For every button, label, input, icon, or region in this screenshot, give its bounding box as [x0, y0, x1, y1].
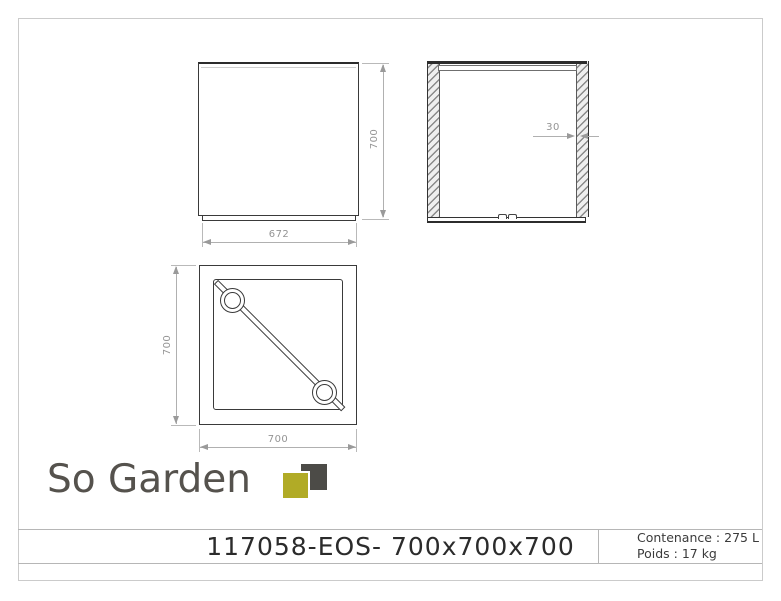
front-dim-width-arrow-right [348, 239, 356, 245]
front-dim-width-extension-right [356, 223, 357, 247]
top-view-drain-hole-1-inner [224, 292, 241, 309]
capacity-text: Contenance : 275 L [637, 530, 762, 546]
front-view-top-seam [201, 67, 356, 68]
section-drain-notch-right [508, 214, 517, 219]
front-dim-height-arrow-bottom [380, 210, 386, 218]
product-info-cell: Contenance : 275 L Poids : 17 kg [637, 530, 762, 562]
top-dim-height-label: 700 [158, 330, 178, 360]
section-dim-wall-tail [588, 136, 599, 137]
top-view-drain-hole-2-inner [316, 384, 333, 401]
section-left-wall-hatch [427, 61, 440, 217]
front-dim-width-arrow-left [203, 239, 211, 245]
top-dim-height-arrow-bottom [173, 416, 179, 424]
section-dim-wall-arrow-right [580, 133, 588, 139]
front-dim-height-label: 700 [365, 124, 385, 154]
section-dim-wall-arrow-left [567, 133, 575, 139]
logo-olive-square-icon [283, 473, 308, 498]
top-dim-width-arrow-right [348, 444, 356, 450]
section-inner-rim [438, 65, 577, 71]
top-dim-width-line [200, 447, 356, 448]
top-dim-height-extension-bottom [171, 425, 196, 426]
front-view-base-lip [202, 215, 356, 221]
section-dim-wall-leader [533, 136, 571, 137]
section-top-edge [427, 61, 587, 64]
section-dim-wall-label: 30 [540, 122, 566, 133]
top-dim-width-extension-right [356, 429, 357, 452]
front-dim-height-extension-bottom [362, 219, 389, 220]
top-dim-height-arrow-top [173, 266, 179, 274]
top-dim-width-label: 700 [263, 434, 293, 445]
section-right-wall-hatch [576, 61, 589, 217]
section-drain-notch-left [498, 214, 507, 219]
weight-text: Poids : 17 kg [637, 546, 762, 562]
logo-wordmark: So Garden [47, 458, 251, 502]
front-dim-width-label: 672 [264, 229, 294, 240]
drawing-sheet: 700 672 30 [0, 0, 781, 601]
top-dim-width-arrow-left [200, 444, 208, 450]
front-view-body [198, 62, 359, 216]
front-dim-width-line [203, 242, 356, 243]
front-dim-height-arrow-top [380, 64, 386, 72]
title-block-bottom-line [18, 563, 762, 564]
